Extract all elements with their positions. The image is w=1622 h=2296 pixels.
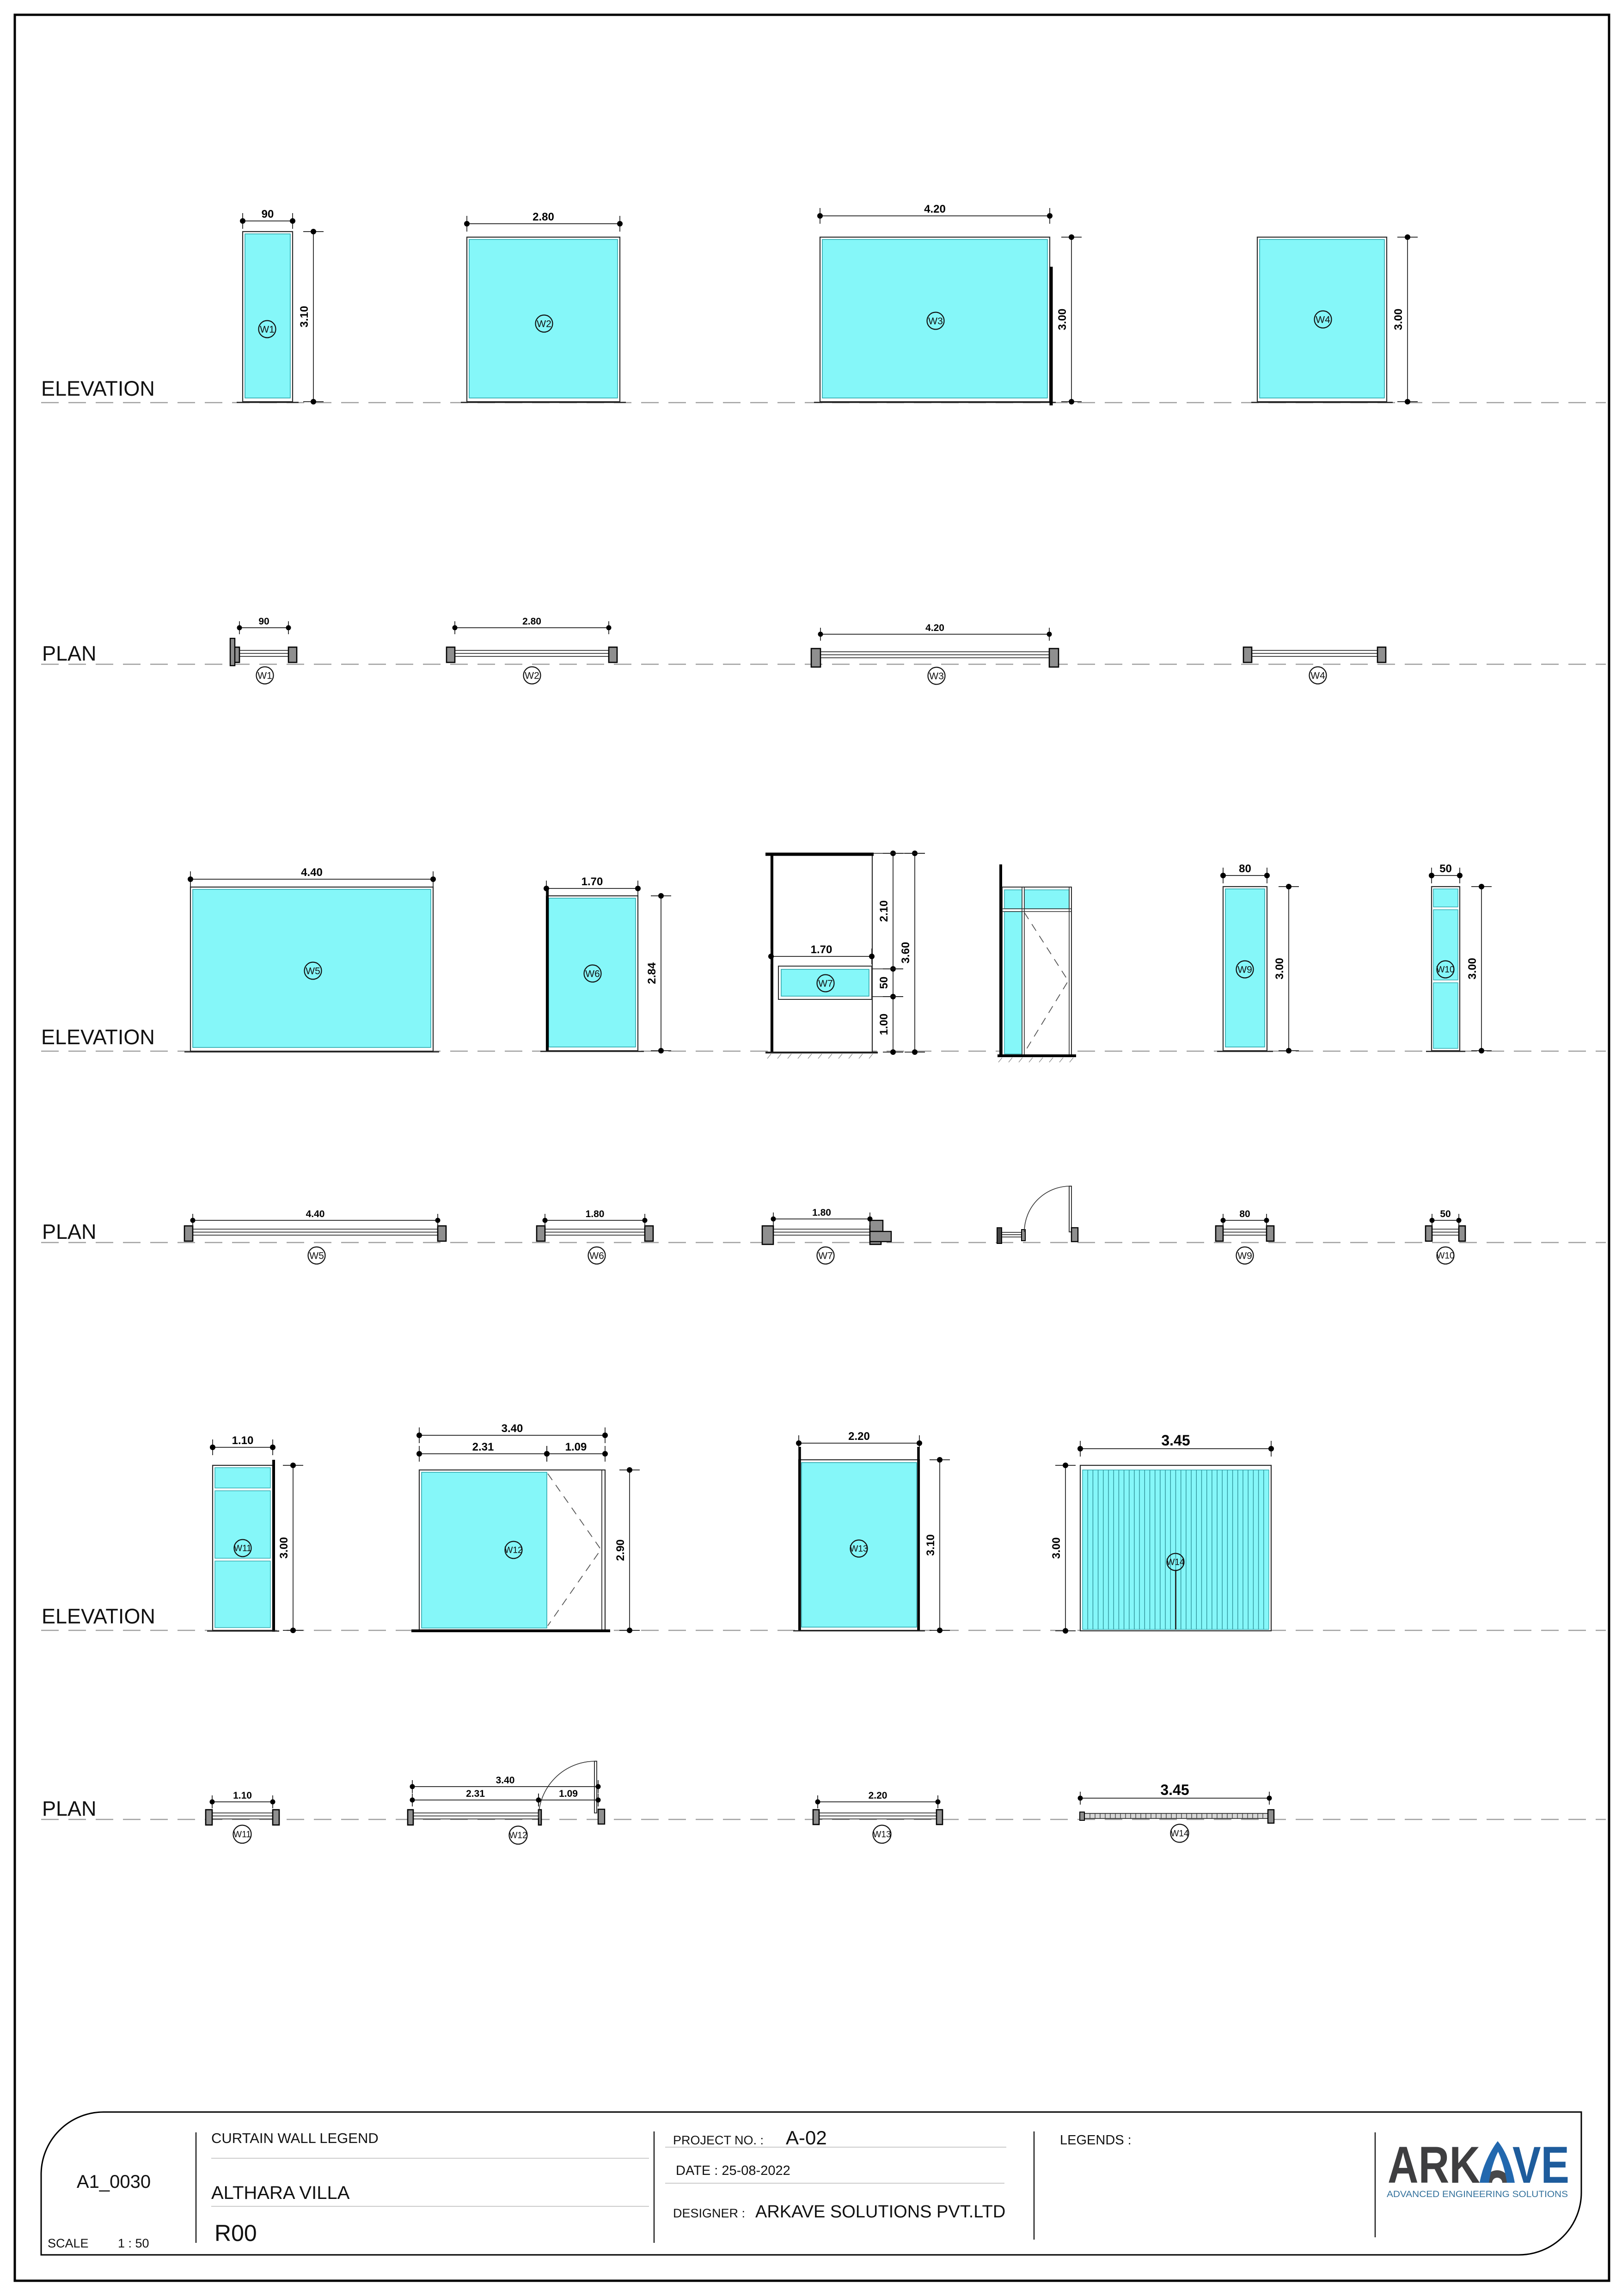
svg-text:4.40: 4.40 xyxy=(306,1209,325,1219)
svg-text:1.09: 1.09 xyxy=(565,1441,587,1453)
svg-text:3.00: 3.00 xyxy=(1392,309,1405,331)
svg-text:A1_0030: A1_0030 xyxy=(77,2172,151,2192)
svg-text:4.20: 4.20 xyxy=(924,203,946,215)
svg-text:W13: W13 xyxy=(850,1544,868,1554)
svg-text:3.10: 3.10 xyxy=(298,306,311,328)
svg-text:1.00: 1.00 xyxy=(878,1014,890,1035)
svg-text:3.45: 3.45 xyxy=(1161,1432,1190,1449)
svg-text:50: 50 xyxy=(1440,1209,1451,1219)
svg-text:W1: W1 xyxy=(257,670,272,681)
svg-text:SCALE: SCALE xyxy=(48,2236,89,2250)
svg-text:2.90: 2.90 xyxy=(614,1539,627,1561)
svg-text:W14: W14 xyxy=(1170,1829,1189,1839)
svg-text:PROJECT NO. :: PROJECT NO. : xyxy=(673,2133,764,2147)
svg-text:W7: W7 xyxy=(818,1250,833,1261)
svg-text:PLAN: PLAN xyxy=(42,1797,97,1820)
svg-text:R00: R00 xyxy=(214,2220,257,2246)
svg-text:ARK: ARK xyxy=(1388,2136,1480,2194)
svg-text:1 : 50: 1 : 50 xyxy=(118,2236,149,2250)
svg-text:W12: W12 xyxy=(509,1831,527,1841)
svg-text:80: 80 xyxy=(1239,1209,1250,1219)
svg-text:W14: W14 xyxy=(1166,1558,1185,1567)
svg-text:2.80: 2.80 xyxy=(533,211,554,223)
svg-text:DATE : 25-08-2022: DATE : 25-08-2022 xyxy=(676,2163,790,2178)
svg-text:2.31: 2.31 xyxy=(472,1441,494,1453)
svg-text:3.45: 3.45 xyxy=(1160,1782,1189,1798)
svg-text:ARKAVE SOLUTIONS PVT.LTD: ARKAVE SOLUTIONS PVT.LTD xyxy=(755,2202,1005,2222)
svg-text:3.40: 3.40 xyxy=(502,1422,523,1435)
svg-text:ALTHARA VILLA: ALTHARA VILLA xyxy=(211,2183,350,2203)
svg-text:DESIGNER :: DESIGNER : xyxy=(673,2206,745,2220)
svg-text:W4: W4 xyxy=(1316,314,1330,325)
svg-text:VE: VE xyxy=(1512,2136,1569,2194)
svg-text:W10: W10 xyxy=(1436,1251,1454,1261)
svg-text:ELEVATION: ELEVATION xyxy=(42,1604,155,1628)
svg-text:50: 50 xyxy=(1439,863,1452,875)
svg-text:W6: W6 xyxy=(589,1250,604,1261)
svg-text:1.09: 1.09 xyxy=(559,1788,578,1799)
svg-text:W5: W5 xyxy=(309,1250,324,1261)
svg-text:90: 90 xyxy=(258,616,269,627)
svg-text:W2: W2 xyxy=(537,318,551,329)
svg-text:1.80: 1.80 xyxy=(812,1207,831,1218)
svg-text:LEGENDS :: LEGENDS : xyxy=(1060,2133,1132,2148)
svg-text:A-02: A-02 xyxy=(786,2127,827,2149)
svg-text:2.84: 2.84 xyxy=(646,962,658,984)
svg-text:4.20: 4.20 xyxy=(925,623,944,633)
svg-text:W3: W3 xyxy=(929,671,944,681)
svg-text:PLAN: PLAN xyxy=(42,1220,97,1243)
svg-text:3.40: 3.40 xyxy=(496,1775,515,1786)
svg-text:3.60: 3.60 xyxy=(900,942,912,964)
svg-text:80: 80 xyxy=(1239,863,1251,875)
svg-text:W9: W9 xyxy=(1237,1250,1252,1261)
svg-text:W12: W12 xyxy=(504,1546,522,1555)
svg-text:CURTAIN WALL LEGEND: CURTAIN WALL LEGEND xyxy=(211,2130,379,2146)
svg-text:3.00: 3.00 xyxy=(1466,958,1479,980)
svg-text:1.10: 1.10 xyxy=(232,1434,254,1447)
svg-text:PLAN: PLAN xyxy=(42,642,97,665)
svg-text:W6: W6 xyxy=(585,968,600,979)
svg-text:1.70: 1.70 xyxy=(581,876,603,888)
svg-text:1.80: 1.80 xyxy=(586,1209,605,1219)
svg-text:W2: W2 xyxy=(525,670,539,681)
svg-text:2.31: 2.31 xyxy=(466,1788,485,1799)
svg-text:W7: W7 xyxy=(818,978,833,989)
svg-text:W13: W13 xyxy=(873,1830,891,1840)
svg-text:50: 50 xyxy=(878,977,890,989)
svg-text:W11: W11 xyxy=(233,1830,251,1840)
svg-text:W11: W11 xyxy=(234,1544,251,1554)
svg-text:W9: W9 xyxy=(1237,964,1252,975)
svg-text:2.20: 2.20 xyxy=(848,1430,870,1443)
svg-text:1.70: 1.70 xyxy=(811,943,832,956)
svg-text:2.20: 2.20 xyxy=(869,1790,888,1801)
svg-text:W10: W10 xyxy=(1436,965,1454,975)
svg-text:ADVANCED ENGINEERING SOLUTIONS: ADVANCED ENGINEERING SOLUTIONS xyxy=(1387,2190,1568,2199)
svg-text:1.10: 1.10 xyxy=(233,1790,252,1801)
svg-text:ELEVATION: ELEVATION xyxy=(41,1025,155,1049)
svg-text:W1: W1 xyxy=(260,324,275,335)
svg-text:ELEVATION: ELEVATION xyxy=(41,377,155,400)
svg-text:3.00: 3.00 xyxy=(1273,958,1286,980)
svg-text:2.10: 2.10 xyxy=(878,900,890,922)
svg-text:3.00: 3.00 xyxy=(1050,1537,1063,1559)
svg-text:90: 90 xyxy=(262,208,274,220)
svg-text:W4: W4 xyxy=(1310,670,1325,681)
svg-text:4.40: 4.40 xyxy=(301,866,323,879)
svg-text:3.00: 3.00 xyxy=(278,1537,290,1559)
svg-text:2.80: 2.80 xyxy=(522,616,541,627)
svg-text:W3: W3 xyxy=(928,316,943,326)
svg-text:W5: W5 xyxy=(306,966,320,976)
svg-text:3.00: 3.00 xyxy=(1056,309,1069,331)
svg-text:3.10: 3.10 xyxy=(924,1534,937,1556)
